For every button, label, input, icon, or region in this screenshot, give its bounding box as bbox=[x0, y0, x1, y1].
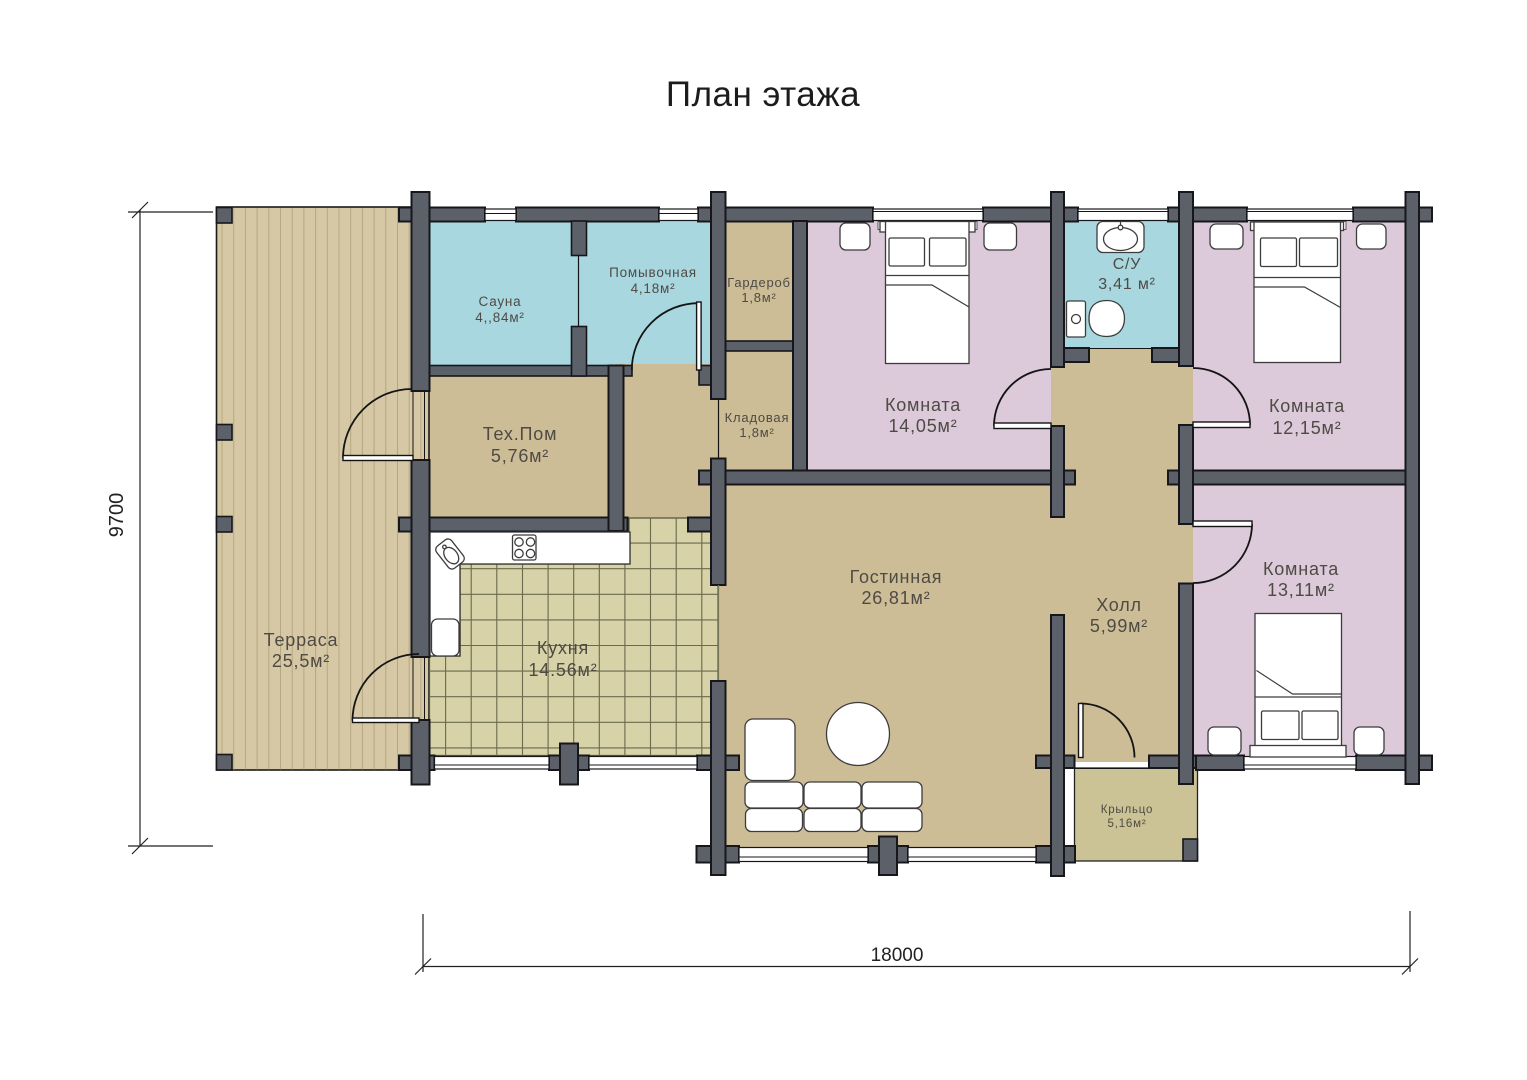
svg-text:Комната: Комната bbox=[1263, 559, 1339, 579]
svg-text:13,11м²: 13,11м² bbox=[1267, 580, 1335, 600]
svg-text:18000: 18000 bbox=[871, 945, 924, 966]
svg-text:25,5м²: 25,5м² bbox=[272, 651, 330, 671]
svg-text:4,,84м²: 4,,84м² bbox=[475, 310, 524, 325]
svg-text:14.56м²: 14.56м² bbox=[528, 660, 597, 680]
svg-text:5,16м²: 5,16м² bbox=[1108, 818, 1147, 830]
svg-text:1,8м²: 1,8м² bbox=[739, 425, 774, 440]
svg-text:26,81м²: 26,81м² bbox=[861, 588, 930, 608]
svg-text:1,8м²: 1,8м² bbox=[741, 290, 776, 305]
svg-text:14,05м²: 14,05м² bbox=[888, 416, 957, 436]
svg-text:Помывочная: Помывочная bbox=[609, 265, 697, 280]
svg-text:С/У: С/У bbox=[1113, 256, 1142, 273]
svg-text:Крыльцо: Крыльцо bbox=[1101, 804, 1154, 816]
svg-text:План этажа: План этажа bbox=[666, 75, 860, 114]
svg-text:3,41 м²: 3,41 м² bbox=[1098, 276, 1156, 293]
svg-text:9700: 9700 bbox=[106, 493, 128, 538]
svg-text:Комната: Комната bbox=[885, 395, 961, 415]
svg-text:5,76м²: 5,76м² bbox=[491, 446, 549, 466]
svg-text:12,15м²: 12,15м² bbox=[1272, 418, 1341, 438]
svg-text:Холл: Холл bbox=[1096, 595, 1142, 615]
svg-text:Гостинная: Гостинная bbox=[850, 567, 943, 587]
svg-text:5,99м²: 5,99м² bbox=[1090, 616, 1148, 636]
svg-text:Тех.Пом: Тех.Пом bbox=[483, 424, 558, 444]
svg-text:4,18м²: 4,18м² bbox=[631, 281, 676, 296]
svg-text:Кухня: Кухня bbox=[537, 638, 589, 658]
svg-text:Кладовая: Кладовая bbox=[725, 410, 790, 425]
svg-text:Терраса: Терраса bbox=[264, 630, 339, 650]
svg-text:Гардероб: Гардероб bbox=[727, 275, 791, 290]
svg-text:Комната: Комната bbox=[1269, 396, 1345, 416]
svg-text:Сауна: Сауна bbox=[479, 294, 522, 309]
